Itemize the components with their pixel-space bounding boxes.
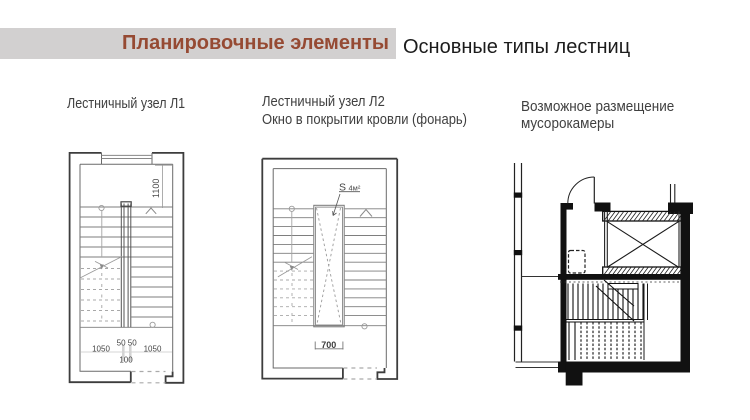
svg-text:100: 100 xyxy=(119,356,133,365)
svg-text:4м²: 4м² xyxy=(349,184,361,193)
svg-text:1100: 1100 xyxy=(151,179,161,198)
svg-text:1050: 1050 xyxy=(144,345,162,354)
svg-text:1050: 1050 xyxy=(92,345,110,354)
svg-text:50 50: 50 50 xyxy=(117,339,138,348)
svg-text:700: 700 xyxy=(321,340,336,350)
